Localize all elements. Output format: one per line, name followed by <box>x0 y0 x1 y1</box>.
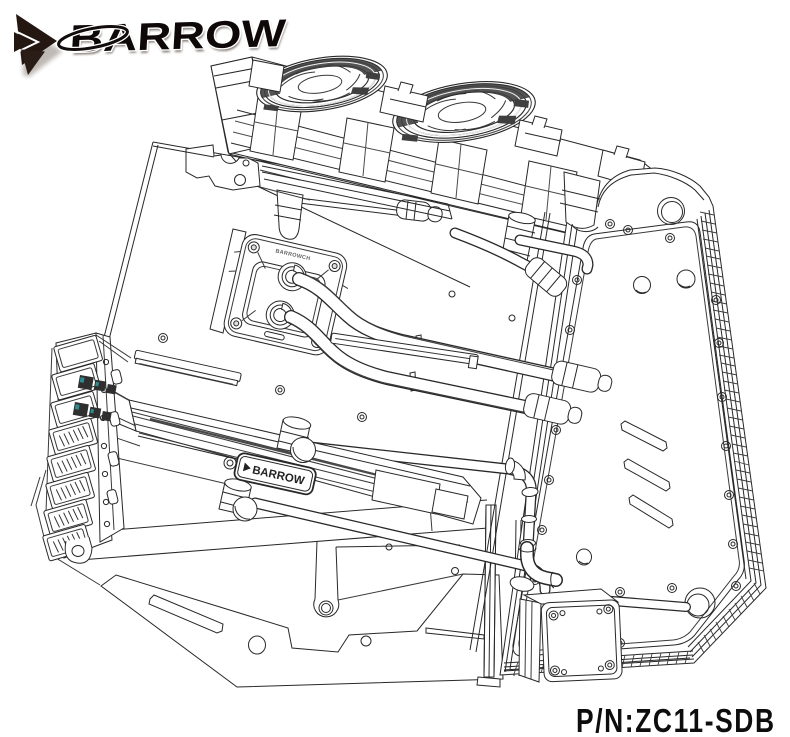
svg-text:BARROW: BARROW <box>68 12 287 61</box>
